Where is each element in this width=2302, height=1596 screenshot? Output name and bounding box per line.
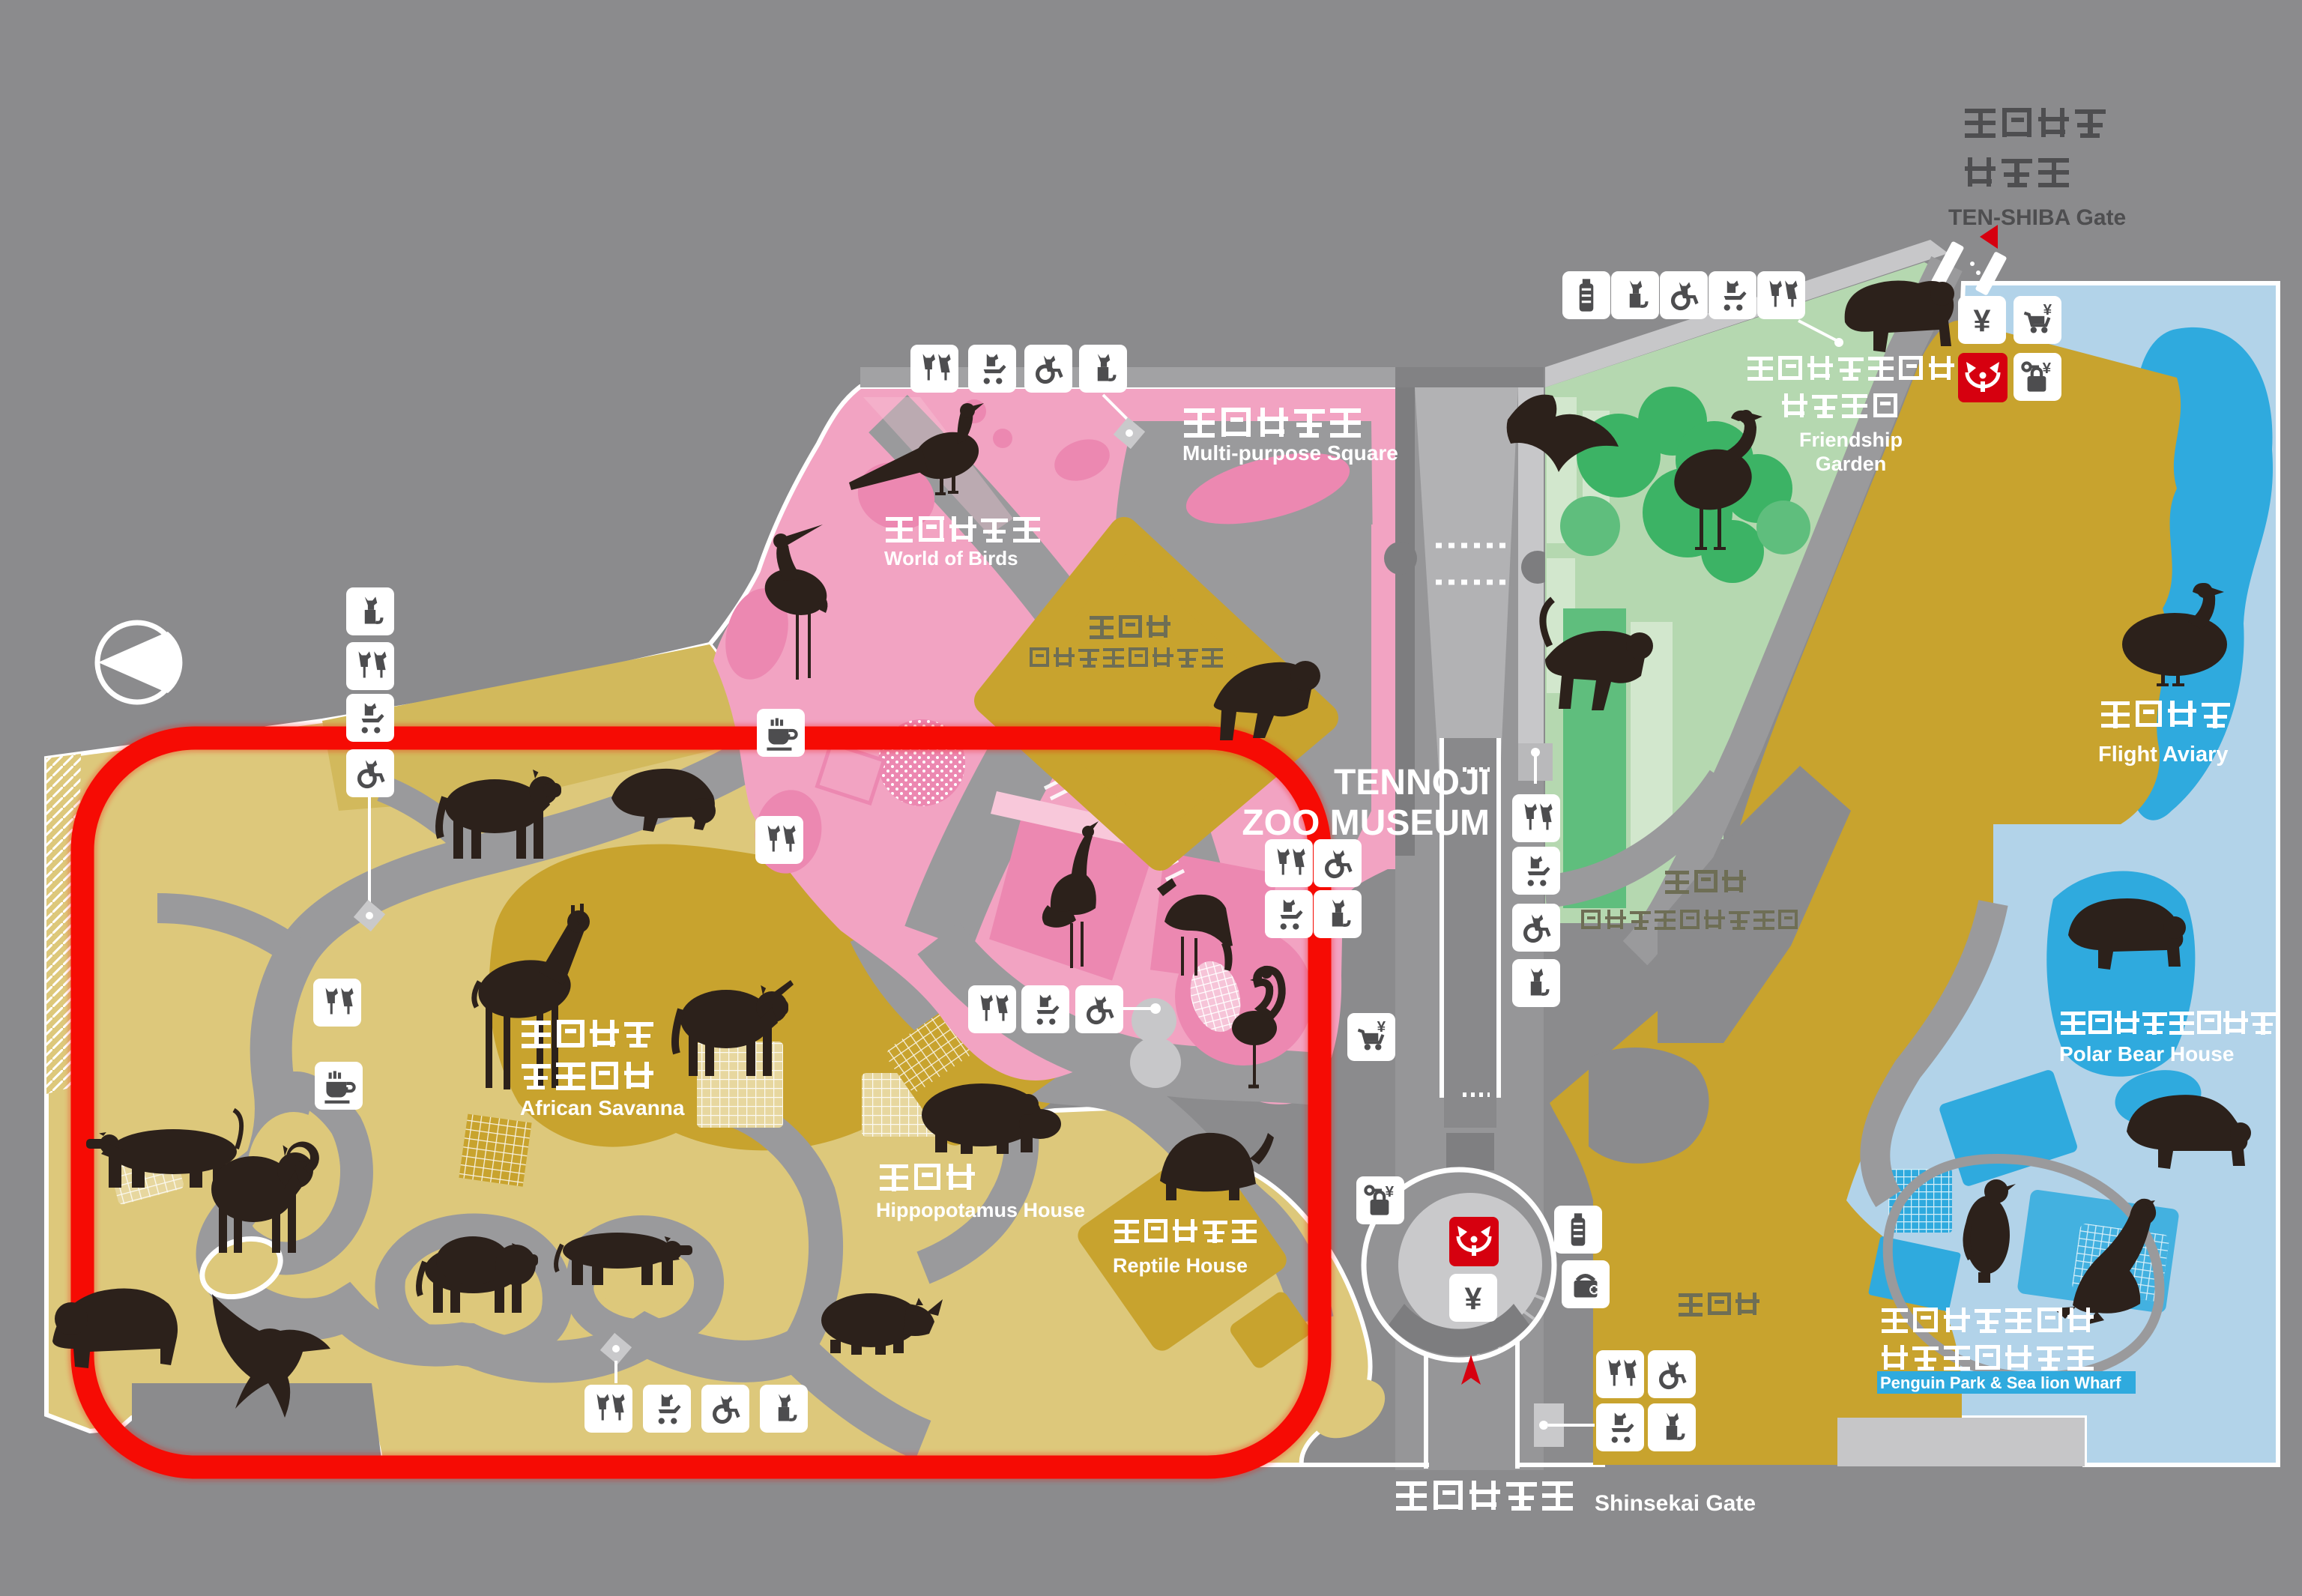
svg-text:TEN-SHIBA Gate: TEN-SHIBA Gate (1948, 205, 2126, 230)
svg-text:¥: ¥ (1465, 1281, 1482, 1316)
svg-text:Multi-purpose Square: Multi-purpose Square (1182, 441, 1398, 465)
svg-text:Flight Aviary: Flight Aviary (2098, 743, 2229, 767)
svg-text:¥: ¥ (1974, 303, 1991, 338)
svg-text:Shinsekai Gate: Shinsekai Gate (1595, 1491, 1756, 1516)
svg-text:Hippopotamus House: Hippopotamus House (876, 1199, 1085, 1221)
svg-text:¥: ¥ (2043, 301, 2052, 318)
svg-text:ZOO MUSEUM: ZOO MUSEUM (1242, 803, 1490, 843)
svg-text:¥: ¥ (1377, 1018, 1386, 1036)
svg-text:African Savanna: African Savanna (520, 1096, 685, 1119)
svg-text:World of Birds: World of Birds (884, 547, 1018, 569)
svg-text:Polar Bear House: Polar Bear House (2059, 1042, 2234, 1065)
svg-text:Friendship: Friendship (1799, 429, 1903, 451)
svg-text:¥: ¥ (2043, 360, 2052, 377)
svg-text:Garden: Garden (1816, 453, 1887, 475)
svg-text:Penguin Park & Sea lion Wharf: Penguin Park & Sea lion Wharf (1880, 1373, 2121, 1392)
svg-text:¥: ¥ (1386, 1183, 1395, 1200)
svg-text:Reptile House: Reptile House (1113, 1254, 1248, 1277)
svg-text:TENNOJI: TENNOJI (1334, 763, 1490, 802)
